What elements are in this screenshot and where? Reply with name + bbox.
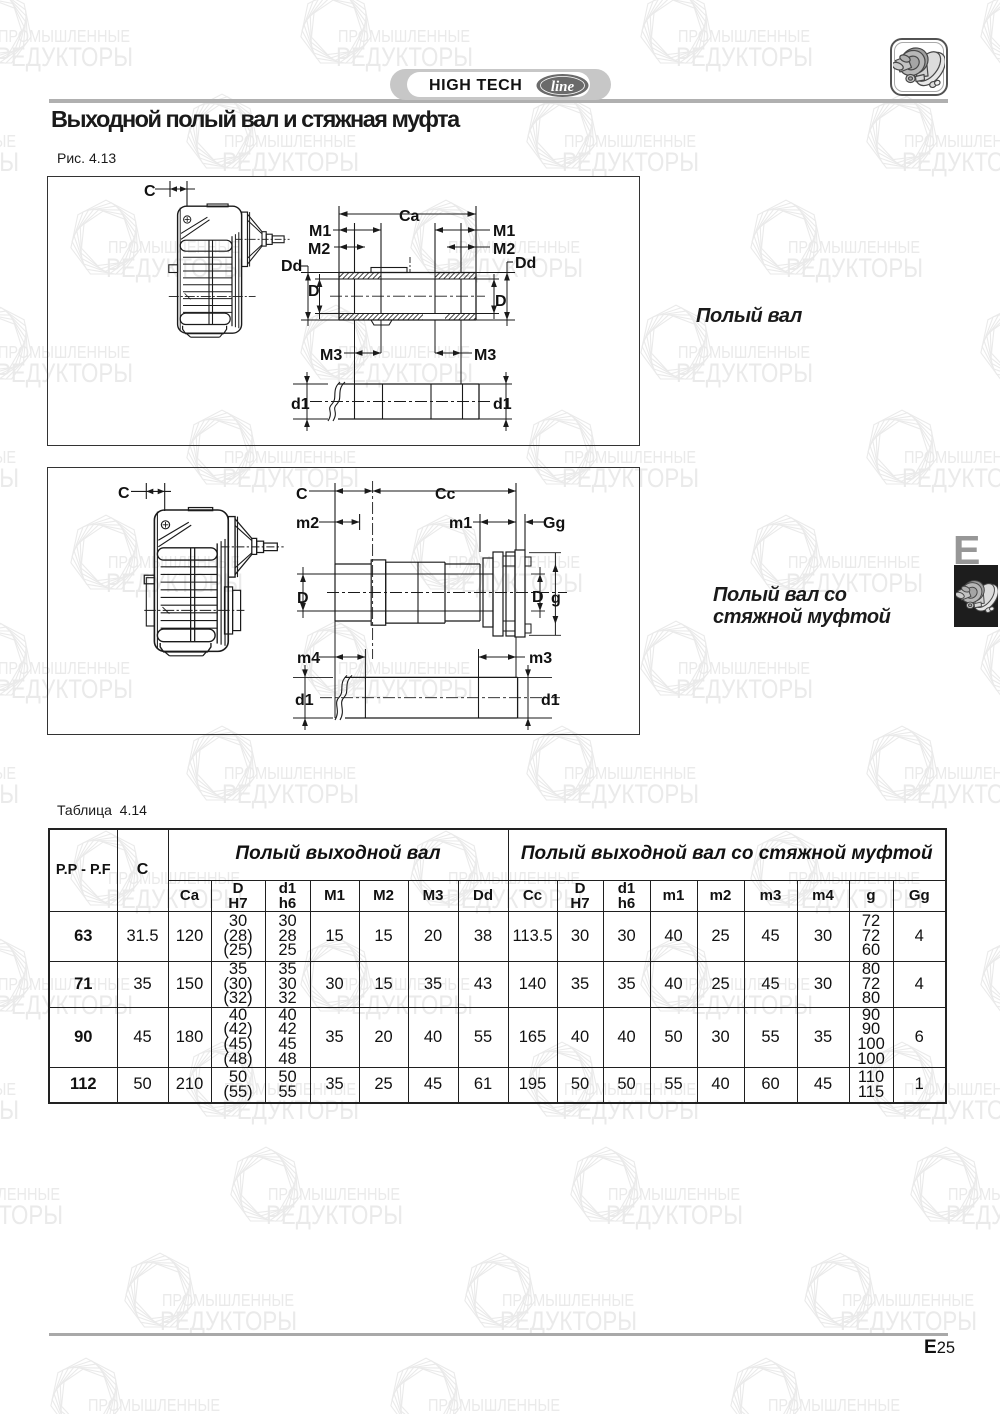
svg-text:d1: d1 xyxy=(541,692,560,709)
svg-text:D: D xyxy=(495,293,507,310)
svg-text:d1: d1 xyxy=(493,396,512,413)
svg-text:M2: M2 xyxy=(493,241,515,258)
svg-text:C: C xyxy=(118,485,130,502)
svg-text:m3: m3 xyxy=(529,650,552,667)
svg-text:M1: M1 xyxy=(309,223,331,240)
svg-text:M3: M3 xyxy=(474,347,496,364)
svg-text:C: C xyxy=(296,486,308,503)
svg-text:Gg: Gg xyxy=(543,515,565,532)
svg-text:Dd: Dd xyxy=(281,258,302,275)
svg-text:M1: M1 xyxy=(493,223,515,240)
svg-text:Dd: Dd xyxy=(515,255,536,272)
svg-text:Cc: Cc xyxy=(435,486,456,503)
svg-text:C: C xyxy=(144,183,156,200)
svg-text:line: line xyxy=(551,79,575,95)
svg-text:m4: m4 xyxy=(297,650,320,667)
svg-text:m2: m2 xyxy=(296,515,319,532)
svg-text:M2: M2 xyxy=(308,241,330,258)
svg-text:m1: m1 xyxy=(449,515,472,532)
svg-text:M3: M3 xyxy=(320,347,342,364)
svg-text:Ca: Ca xyxy=(399,208,420,225)
svg-text:d1: d1 xyxy=(295,692,314,709)
